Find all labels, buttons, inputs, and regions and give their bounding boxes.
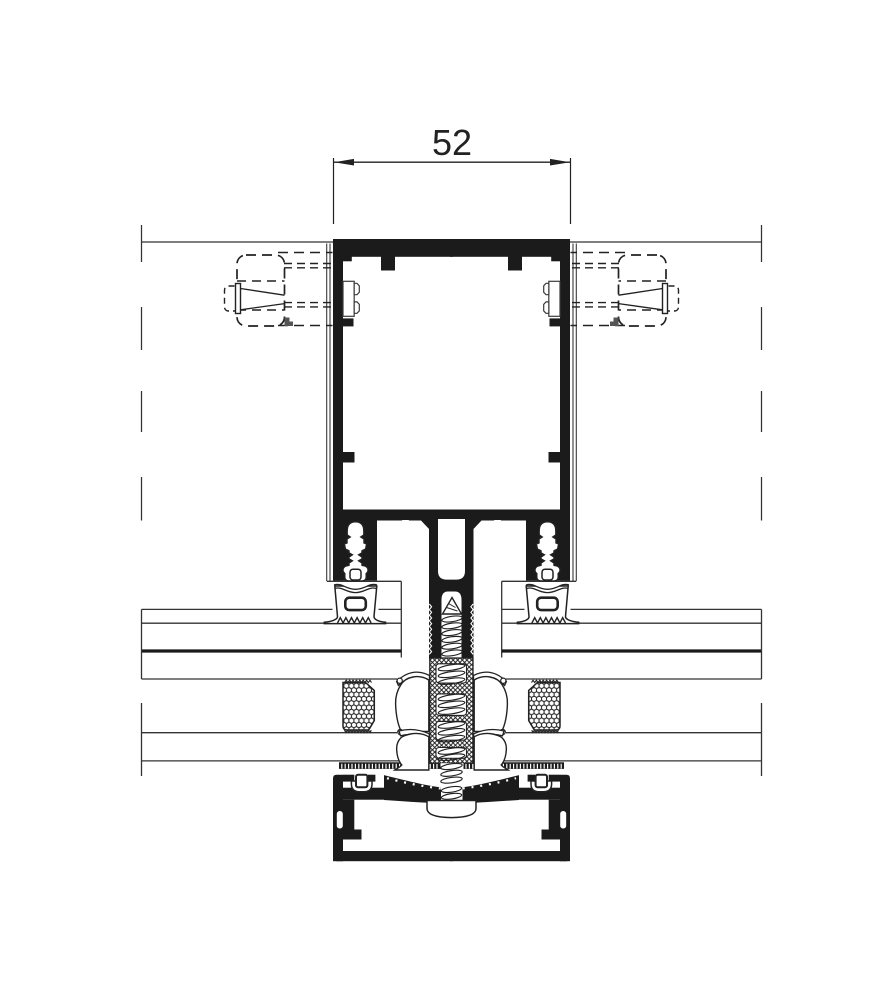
svg-text:52: 52 bbox=[432, 122, 472, 163]
